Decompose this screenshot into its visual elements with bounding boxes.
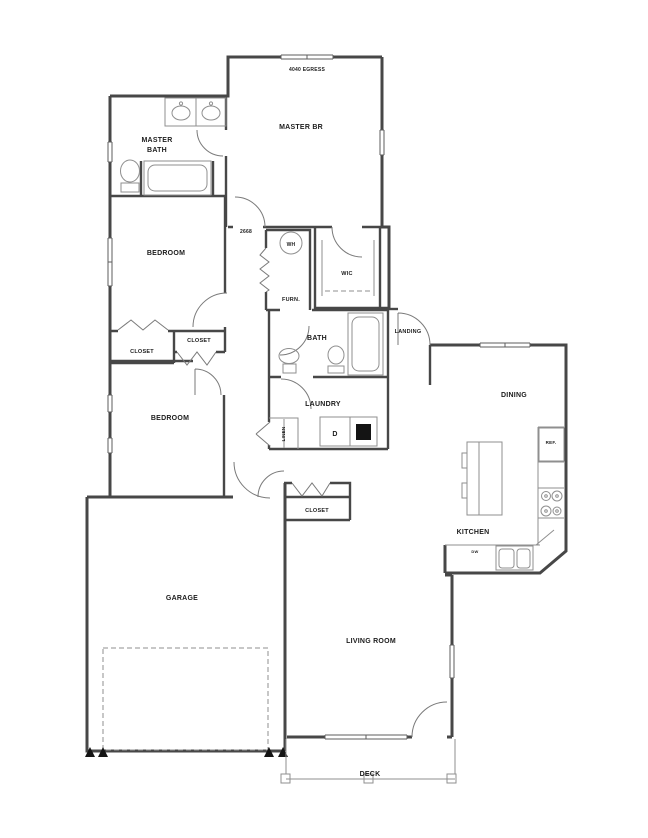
kitchen-counter-bottom xyxy=(445,545,540,570)
closet3-label: CLOSET xyxy=(305,508,329,514)
tub-master-bath xyxy=(144,161,211,195)
range-burners xyxy=(541,491,562,516)
dishwasher-label: DW xyxy=(471,549,478,554)
bath-label: BATH xyxy=(307,335,327,342)
vanity-double-sink xyxy=(165,98,226,126)
wedge-linen xyxy=(256,422,270,446)
window-bedroom1 xyxy=(108,238,112,286)
tub-bath xyxy=(348,313,383,375)
dining-label: DINING xyxy=(501,392,527,399)
window-bedroom2-b xyxy=(108,438,112,453)
window-living-room-right xyxy=(450,645,454,678)
window-living-room xyxy=(325,735,407,739)
water-heater-label: WH xyxy=(287,242,296,248)
wic-label: WIC xyxy=(341,271,352,277)
door-master-bath xyxy=(197,130,223,156)
linen-label: LINEN xyxy=(281,427,286,442)
bifold-closet-living xyxy=(292,483,330,496)
egress-window-label: 4040 EGRESS xyxy=(289,67,326,73)
floor-plan-page: 4040 EGRESS MASTER BR MASTER BATH BEDROO… xyxy=(0,0,648,838)
accordion-furnace xyxy=(260,248,269,292)
kitchen-label: KITCHEN xyxy=(457,529,490,536)
garage-door-area xyxy=(103,648,268,750)
door-bath xyxy=(280,326,309,355)
room-labels: 4040 EGRESS MASTER BR MASTER BATH BEDROO… xyxy=(130,67,556,778)
wic-shelving xyxy=(322,240,374,296)
bifold-closet2 xyxy=(177,352,216,365)
master-br-label: MASTER BR xyxy=(279,124,323,131)
closet2-label: CLOSET xyxy=(187,338,211,344)
window-dining xyxy=(480,343,530,347)
living-room-label: LIVING ROOM xyxy=(346,638,396,645)
door-living-room-deck xyxy=(412,702,447,737)
master-bath-label-line1: MASTER xyxy=(141,137,172,144)
furnace-label: FURN. xyxy=(282,297,300,303)
dryer-label: D xyxy=(332,431,337,438)
toilet-bath xyxy=(328,346,344,373)
landing-label: LANDING xyxy=(395,329,422,335)
garage-label: GARAGE xyxy=(166,595,198,602)
kitchen-island xyxy=(462,442,502,515)
toilet-master-bath xyxy=(121,160,140,192)
refrigerator-label: REF. xyxy=(546,440,557,445)
bedroom1-label: BEDROOM xyxy=(147,250,185,257)
door-garage-entry xyxy=(258,471,284,497)
closet1-label: CLOSET xyxy=(130,349,154,355)
floor-plan-drawing: 4040 EGRESS MASTER BR MASTER BATH BEDROO… xyxy=(0,0,648,838)
door-bedroom1 xyxy=(193,293,227,327)
bedroom2-label: BEDROOM xyxy=(151,415,189,422)
door-master-br xyxy=(235,197,265,227)
windows xyxy=(108,55,530,739)
deck-label: DECK xyxy=(360,771,381,778)
window-master-br-right xyxy=(380,130,384,155)
bifold-closet1 xyxy=(118,320,168,330)
door-size-label: 2668 xyxy=(240,229,252,235)
window-bedroom2-a xyxy=(108,395,112,412)
door-wic xyxy=(332,227,362,257)
laundry-label: LAUNDRY xyxy=(305,401,341,408)
window-egress xyxy=(281,55,333,59)
sink-bath xyxy=(279,349,299,374)
window-master-bath xyxy=(108,142,112,162)
master-bath-label-line2: BATH xyxy=(147,147,167,154)
fixtures xyxy=(85,98,564,783)
door-bedroom2 xyxy=(195,369,221,395)
washer-box xyxy=(350,417,377,446)
